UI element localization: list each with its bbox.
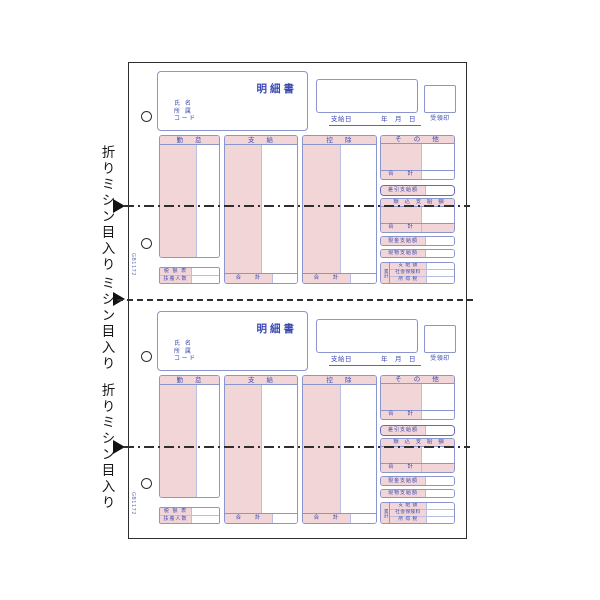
cumulative-rows: 支 給 額 社会保険料 所 得 税: [390, 503, 454, 523]
recipient-box: 明細書 氏 名 所 属 コード: [157, 71, 308, 131]
transfer-item-cells: [381, 447, 422, 463]
other-header: そ の 他: [381, 136, 454, 144]
product-image-stage: 折りミシン目入り ミシン目入り 折りミシン目入り GB1172 GB1172 明…: [0, 0, 600, 600]
deduction-total-value: [351, 514, 376, 523]
other-column: そ の 他 合 計: [380, 375, 455, 420]
tax-table-label: 税 額 表: [160, 508, 192, 515]
code-label: コード: [174, 115, 197, 123]
deduction-total-row: 合 計: [303, 273, 376, 283]
in-kind-pay-value: [426, 250, 454, 257]
deduction-column: 控 除 合 計: [302, 135, 377, 284]
cash-pay-label: 現金支給額: [381, 477, 426, 485]
transfer-total-row: 合 計: [381, 223, 454, 232]
day-label: 日: [409, 356, 416, 363]
pay-date-box: [316, 319, 418, 353]
payment-column: 支 給 合 計: [224, 135, 298, 284]
margin-label-fold-top: 折りミシン目入り: [99, 145, 113, 273]
form-title: 明細書: [257, 81, 298, 96]
in-kind-pay-label: 現物支給額: [381, 250, 426, 257]
cumulative-label: 累計: [381, 263, 390, 283]
recipient-labels: 氏 名 所 属 コード: [174, 100, 197, 123]
month-label: 月: [395, 356, 402, 363]
other-item-cells: [381, 144, 422, 170]
cash-pay-label: 現金支給額: [381, 237, 426, 245]
payment-total-row: 合 計: [225, 513, 297, 523]
attendance-body: [160, 145, 219, 257]
payment-body: [225, 385, 297, 513]
transfer-total-label: 合 計: [381, 464, 422, 472]
cash-pay-row: 現金支給額: [381, 477, 454, 485]
tax-table-value: [192, 268, 219, 275]
pay-date-label: 支給日: [331, 356, 352, 363]
net-pay-value: [426, 426, 454, 435]
transfer-box: 振 込 支 給 額 合 計: [380, 438, 455, 473]
cash-pay-row: 現金支給額: [381, 237, 454, 245]
tax-table-label: 税 額 表: [160, 268, 192, 275]
dept-label: 所 属: [174, 108, 197, 116]
deduction-column: 控 除 合 計: [302, 375, 377, 524]
deduction-total-row: 合 計: [303, 513, 376, 523]
tax-table-row: 税 額 表: [160, 508, 219, 516]
dependents-value: [192, 276, 219, 283]
transfer-box: 振 込 支 給 額 合 計: [380, 198, 455, 233]
other-total-row: 合 計: [381, 410, 454, 419]
perforation-line-middle: [117, 299, 477, 301]
dependents-row: 扶養人数: [160, 516, 219, 523]
other-total-row: 合 計: [381, 170, 454, 179]
deduction-header: 控 除: [303, 136, 376, 145]
other-body: [381, 144, 454, 170]
deduction-header: 控 除: [303, 376, 376, 385]
date-underline: [329, 125, 421, 126]
recipient-labels: 氏 名 所 属 コード: [174, 340, 197, 363]
margin-label-perforation: ミシン目入り: [99, 276, 113, 372]
tax-info-box: 税 額 表 扶養人数: [159, 267, 220, 284]
fold-perforation-line-top: [124, 205, 470, 207]
margin-label-fold-bottom: 折りミシン目入り: [99, 383, 113, 511]
dependents-label: 扶養人数: [160, 516, 192, 523]
in-kind-pay-value: [426, 490, 454, 497]
transfer-body: [381, 447, 454, 463]
cumulative-insurance-row: 社会保険料: [390, 269, 454, 276]
other-total-label: 合 計: [381, 171, 422, 179]
transfer-item-cells: [381, 207, 422, 223]
name-label: 氏 名: [174, 100, 197, 108]
cumulative-tax-label: 所 得 税: [390, 517, 427, 523]
cash-pay-value: [426, 477, 454, 485]
cumulative-label: 累計: [381, 503, 390, 523]
cumulative-tax-label: 所 得 税: [390, 277, 427, 283]
deduction-body: [303, 385, 376, 513]
in-kind-pay-row: 現物支給額: [381, 250, 454, 257]
dependents-row: 扶養人数: [160, 276, 219, 283]
in-kind-pay-box: 現物支給額: [380, 489, 455, 498]
cumulative-tax-row: 所 得 税: [390, 516, 454, 523]
name-label: 氏 名: [174, 340, 197, 348]
payment-total-label: 合 計: [225, 514, 273, 523]
transfer-total-row: 合 計: [381, 463, 454, 472]
cash-pay-value: [426, 237, 454, 245]
cumulative-box: 累計 支 給 額 社会保険料 所 得 税: [380, 262, 455, 284]
deduction-total-value: [351, 274, 376, 283]
tax-table-row: 税 額 表: [160, 268, 219, 276]
other-item-cells: [381, 384, 422, 410]
other-column: そ の 他 合 計: [380, 135, 455, 180]
deduction-body: [303, 145, 376, 273]
date-underline: [329, 365, 421, 366]
payment-column: 支 給 合 計: [224, 375, 298, 524]
pay-date-label: 支給日: [331, 116, 352, 123]
transfer-total-label: 合 計: [381, 224, 422, 232]
payment-header: 支 給: [225, 136, 297, 145]
payment-total-label: 合 計: [225, 274, 273, 283]
other-body: [381, 384, 454, 410]
pay-date-box: [316, 79, 418, 113]
deduction-item-cells: [303, 385, 341, 513]
receipt-stamp-label: 受領印: [422, 116, 458, 122]
month-label: 月: [395, 116, 402, 123]
net-pay-row: 差引支給額: [381, 426, 454, 435]
code-label: コード: [174, 355, 197, 363]
cumulative-tax-value: [427, 517, 454, 523]
year-label: 年: [381, 116, 388, 123]
in-kind-pay-label: 現物支給額: [381, 490, 426, 497]
net-pay-box: 差引支給額: [380, 185, 455, 196]
other-total-label: 合 計: [381, 411, 422, 419]
deduction-item-cells: [303, 145, 341, 273]
payment-header: 支 給: [225, 376, 297, 385]
cash-pay-box: 現金支給額: [380, 476, 455, 486]
day-label: 日: [409, 116, 416, 123]
statement-form-top: 明細書 氏 名 所 属 コード 支給日 年 月 日 受領印 勤 怠: [129, 63, 468, 303]
payment-body: [225, 145, 297, 273]
receipt-stamp-box: [424, 85, 456, 113]
net-pay-row: 差引支給額: [381, 186, 454, 195]
payment-total-row: 合 計: [225, 273, 297, 283]
in-kind-pay-row: 現物支給額: [381, 490, 454, 497]
net-pay-box: 差引支給額: [380, 425, 455, 436]
cumulative-tax-value: [427, 277, 454, 283]
payment-item-cells: [225, 385, 262, 513]
fold-perforation-line-bottom: [124, 446, 470, 448]
cumulative-rows: 支 給 額 社会保険料 所 得 税: [390, 263, 454, 283]
cash-pay-box: 現金支給額: [380, 236, 455, 246]
year-label: 年: [381, 356, 388, 363]
cumulative-box: 累計 支 給 額 社会保険料 所 得 税: [380, 502, 455, 524]
dependents-value: [192, 516, 219, 523]
attendance-column: 勤 怠: [159, 135, 220, 258]
payment-item-cells: [225, 145, 262, 273]
receipt-stamp-box: [424, 325, 456, 353]
receipt-stamp-label: 受領印: [422, 356, 458, 362]
dept-label: 所 属: [174, 348, 197, 356]
attendance-body: [160, 385, 219, 497]
attendance-item-cells: [160, 145, 197, 257]
cumulative-tax-row: 所 得 税: [390, 276, 454, 283]
cumulative-insurance-row: 社会保険料: [390, 509, 454, 516]
tax-info-box: 税 額 表 扶養人数: [159, 507, 220, 524]
dependents-label: 扶養人数: [160, 276, 192, 283]
other-total-value: [422, 411, 454, 419]
attendance-header: 勤 怠: [160, 376, 219, 385]
attendance-header: 勤 怠: [160, 136, 219, 145]
transfer-body: [381, 207, 454, 223]
net-pay-label: 差引支給額: [381, 426, 426, 435]
attendance-column: 勤 怠: [159, 375, 220, 498]
deduction-total-label: 合 計: [303, 274, 351, 283]
payment-total-value: [273, 514, 297, 523]
other-header: そ の 他: [381, 376, 454, 384]
net-pay-value: [426, 186, 454, 195]
attendance-item-cells: [160, 385, 197, 497]
deduction-total-label: 合 計: [303, 514, 351, 523]
statement-form-bottom: 明細書 氏 名 所 属 コード 支給日 年 月 日 受領印 勤 怠: [129, 303, 468, 543]
form-title: 明細書: [257, 321, 298, 336]
tax-table-value: [192, 508, 219, 515]
transfer-total-value: [422, 464, 454, 472]
payment-total-value: [273, 274, 297, 283]
other-total-value: [422, 171, 454, 179]
recipient-box: 明細書 氏 名 所 属 コード: [157, 311, 308, 371]
transfer-total-value: [422, 224, 454, 232]
net-pay-label: 差引支給額: [381, 186, 426, 195]
in-kind-pay-box: 現物支給額: [380, 249, 455, 258]
